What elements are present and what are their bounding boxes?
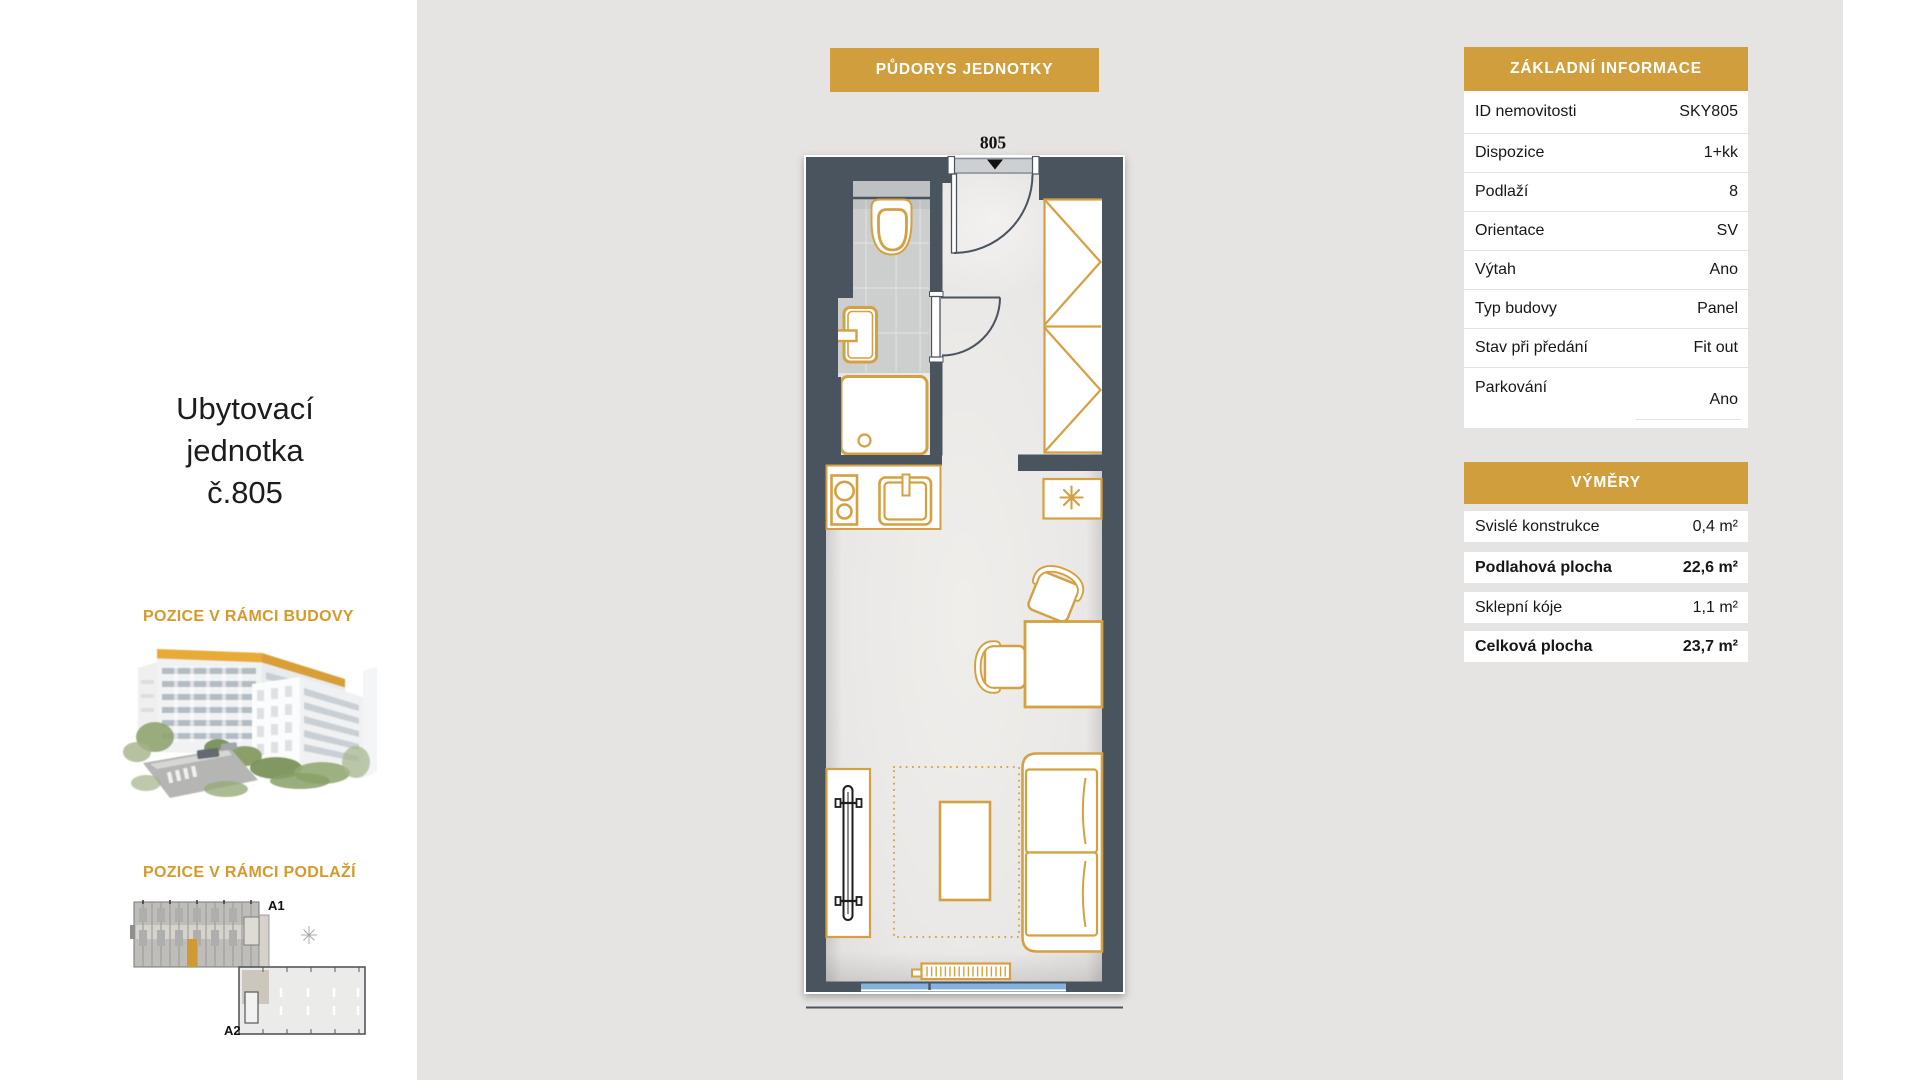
svg-text:A1: A1 — [268, 898, 285, 913]
svg-text:A2: A2 — [224, 1023, 241, 1038]
svg-text:805: 805 — [980, 133, 1007, 153]
